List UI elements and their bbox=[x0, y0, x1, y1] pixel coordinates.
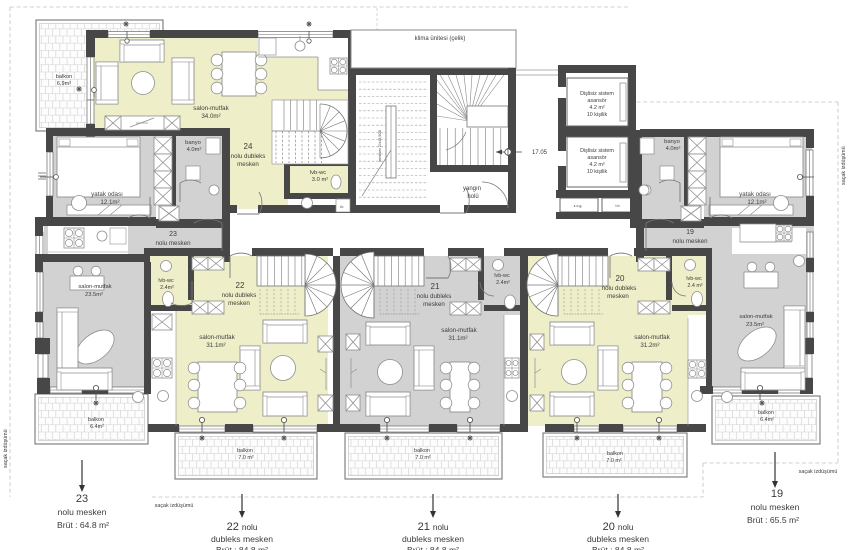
svg-text:2.4m²: 2.4m² bbox=[160, 285, 174, 291]
svg-text:7.0 m²: 7.0 m² bbox=[415, 455, 430, 461]
svg-text:holü: holü bbox=[467, 194, 478, 200]
svg-text:salon-mutfak: salon-mutfak bbox=[634, 334, 670, 341]
svg-text:nolu dubleks: nolu dubleks bbox=[222, 292, 257, 299]
svg-text:t.b.: t.b. bbox=[340, 205, 345, 209]
svg-text:34.0m²: 34.0m² bbox=[201, 113, 220, 120]
svg-text:saçak izdüşümü: saçak izdüşümü bbox=[155, 503, 194, 509]
svg-text:salon-mutfak: salon-mutfak bbox=[441, 327, 477, 334]
svg-text:2.4m²: 2.4m² bbox=[496, 280, 510, 286]
svg-text:yatak odası: yatak odası bbox=[91, 191, 123, 198]
svg-text:klima ünitesi (çelik): klima ünitesi (çelik) bbox=[415, 36, 466, 42]
svg-text:merdiven 20x16,5/28: merdiven 20x16,5/28 bbox=[378, 130, 382, 162]
svg-text:balkon: balkon bbox=[607, 451, 623, 457]
svg-text:23: 23 bbox=[76, 493, 88, 505]
svg-text:23.5m²: 23.5m² bbox=[746, 322, 764, 328]
svg-text:balkon: balkon bbox=[414, 448, 430, 454]
svg-text:20: 20 bbox=[616, 274, 625, 283]
svg-text:nolu dubleks: nolu dubleks bbox=[602, 285, 637, 292]
svg-text:Brüt : 84.8 m²: Brüt : 84.8 m² bbox=[407, 545, 459, 550]
svg-text:nolu mesken: nolu mesken bbox=[751, 502, 800, 512]
svg-text:6.4m²: 6.4m² bbox=[760, 417, 774, 423]
svg-text:Dişlisiz sistem: Dişlisiz sistem bbox=[580, 148, 614, 154]
svg-text:nolu dubleks: nolu dubleks bbox=[417, 293, 452, 300]
svg-text:10 kişilik: 10 kişilik bbox=[587, 169, 608, 175]
svg-text:Dişlisiz sistem: Dişlisiz sistem bbox=[580, 91, 614, 97]
svg-text:31.2m²: 31.2m² bbox=[640, 342, 659, 349]
svg-text:yatak odası: yatak odası bbox=[739, 191, 771, 198]
svg-text:3.0 m²: 3.0 m² bbox=[312, 177, 328, 183]
svg-text:4.0m²: 4.0m² bbox=[187, 147, 202, 153]
svg-text:12.1m²: 12.1m² bbox=[100, 199, 119, 206]
svg-text:17.05: 17.05 bbox=[532, 150, 548, 156]
svg-text:balkon: balkon bbox=[88, 417, 104, 423]
svg-text:mesken: mesken bbox=[228, 300, 250, 307]
svg-text:balkon: balkon bbox=[56, 74, 72, 80]
svg-text:lvb-wc: lvb-wc bbox=[158, 278, 174, 284]
svg-text:22 nolu: 22 nolu bbox=[227, 521, 258, 533]
svg-text:24: 24 bbox=[244, 142, 253, 151]
svg-text:asansör: asansör bbox=[587, 98, 606, 104]
svg-text:19: 19 bbox=[771, 488, 783, 500]
svg-text:banyo: banyo bbox=[664, 139, 680, 145]
svg-text:2.4 m²: 2.4 m² bbox=[687, 283, 702, 289]
svg-text:saçak izdüşümü: saçak izdüşümü bbox=[841, 146, 847, 185]
svg-text:10 kişilik: 10 kişilik bbox=[587, 112, 608, 118]
svg-text:dubleks mesken: dubleks mesken bbox=[402, 534, 464, 544]
svg-text:Brüt : 84.8 m²: Brüt : 84.8 m² bbox=[592, 545, 644, 550]
svg-text:saçak izdüşümü: saçak izdüşümü bbox=[799, 469, 838, 475]
svg-text:lvb-wc: lvb-wc bbox=[494, 273, 510, 279]
svg-text:nolu mesken: nolu mesken bbox=[58, 507, 107, 517]
svg-text:21 nolu: 21 nolu bbox=[418, 521, 449, 533]
svg-text:19: 19 bbox=[686, 229, 694, 236]
svg-text:Brüt : 64.8 m²: Brüt : 64.8 m² bbox=[57, 520, 109, 530]
svg-text:nolu mesken: nolu mesken bbox=[155, 240, 191, 247]
svg-text:23.5m²: 23.5m² bbox=[85, 292, 103, 298]
svg-text:dubleks mesken: dubleks mesken bbox=[587, 534, 649, 544]
svg-text:31.1m²: 31.1m² bbox=[206, 342, 225, 349]
svg-text:t.b.: t.b. bbox=[616, 204, 621, 208]
svg-text:4.2 m²: 4.2 m² bbox=[589, 105, 604, 111]
svg-text:21: 21 bbox=[431, 282, 440, 291]
svg-text:salon-mutfak: salon-mutfak bbox=[78, 284, 111, 290]
svg-text:lvb-wc: lvb-wc bbox=[686, 276, 702, 282]
svg-text:salon-mutfak: salon-mutfak bbox=[199, 334, 235, 341]
svg-text:lvb-wc: lvb-wc bbox=[310, 170, 327, 176]
svg-text:Brüt : 65.5 m²: Brüt : 65.5 m² bbox=[747, 515, 799, 525]
svg-text:4.0m²: 4.0m² bbox=[666, 146, 681, 152]
svg-text:banyo: banyo bbox=[185, 140, 201, 146]
svg-text:saçak izdüşümü: saçak izdüşümü bbox=[3, 429, 9, 468]
svg-text:22: 22 bbox=[236, 281, 245, 290]
svg-text:6.4m²: 6.4m² bbox=[90, 424, 104, 430]
svg-text:z.o.g.: z.o.g. bbox=[574, 204, 583, 208]
svg-text:23: 23 bbox=[169, 231, 177, 238]
svg-text:mesken: mesken bbox=[423, 301, 445, 308]
svg-text:asansör: asansör bbox=[587, 155, 606, 161]
svg-text:mesken: mesken bbox=[237, 161, 259, 168]
svg-text:mesken: mesken bbox=[607, 293, 629, 300]
svg-text:salon-mutfak: salon-mutfak bbox=[193, 105, 229, 112]
svg-text:12.1m²: 12.1m² bbox=[747, 199, 766, 206]
svg-text:7.0 m²: 7.0 m² bbox=[606, 458, 621, 464]
svg-text:4.2 m²: 4.2 m² bbox=[589, 162, 604, 168]
svg-text:yangın: yangın bbox=[463, 186, 481, 192]
svg-text:7.0 m²: 7.0 m² bbox=[238, 455, 253, 461]
svg-text:6,9m²: 6,9m² bbox=[57, 81, 71, 87]
svg-text:Brüt : 84.8 m²: Brüt : 84.8 m² bbox=[216, 545, 268, 550]
svg-text:31.1m²: 31.1m² bbox=[448, 335, 467, 342]
svg-text:nolu dubleks: nolu dubleks bbox=[231, 153, 266, 160]
svg-text:20 nolu: 20 nolu bbox=[603, 521, 634, 533]
svg-text:salon-mutfak: salon-mutfak bbox=[739, 314, 772, 320]
svg-text:nolu mesken: nolu mesken bbox=[672, 238, 708, 245]
svg-text:dubleks mesken: dubleks mesken bbox=[211, 534, 273, 544]
svg-text:balkon: balkon bbox=[237, 448, 253, 454]
svg-text:balkon: balkon bbox=[758, 410, 774, 416]
